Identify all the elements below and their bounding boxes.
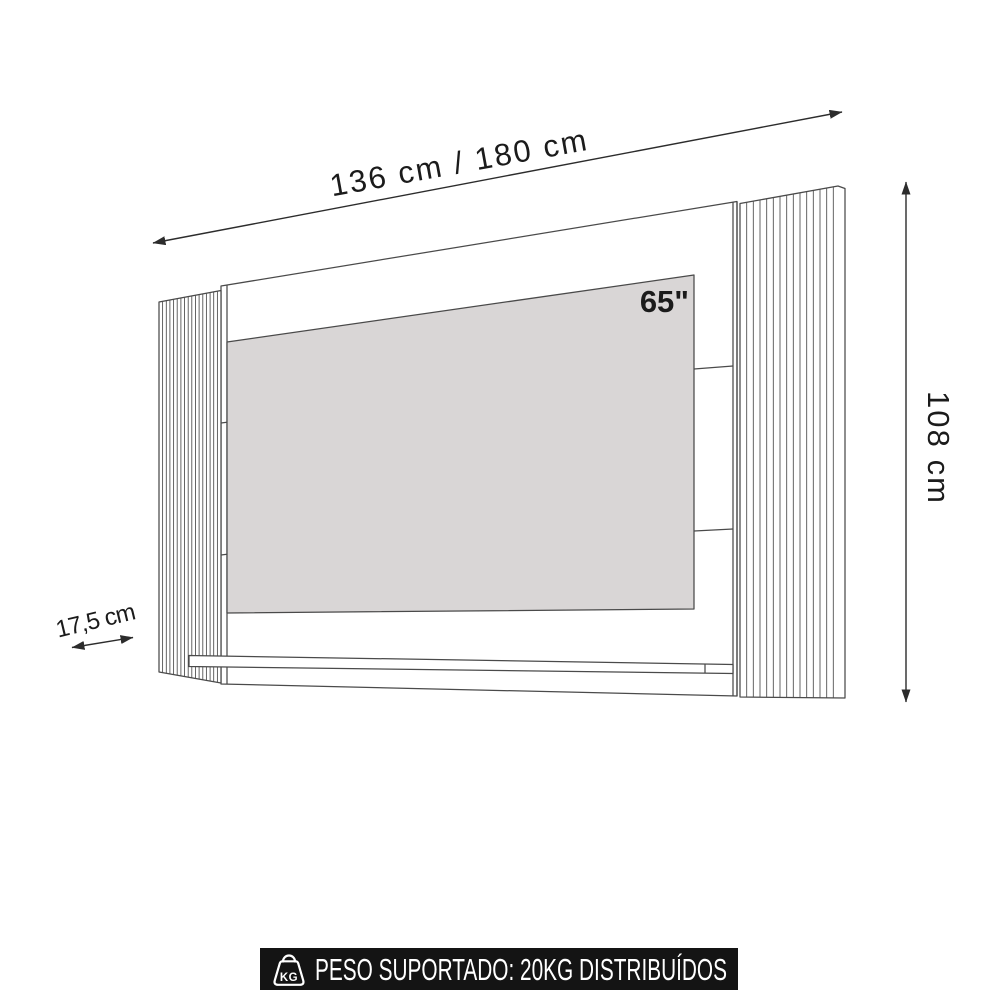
right-slat-panel [737, 186, 845, 698]
left-slat-panel-face [159, 291, 221, 684]
width-dimension-label: 136 cm / 180 cm [327, 122, 591, 203]
panel-drawing: 65" [159, 186, 845, 698]
depth-dimension-arrow [72, 638, 133, 648]
furniture-dimension-diagram: 65" 136 cm / 180 cm 108 cm 17,5 cm KG PE… [0, 0, 1000, 1000]
right-slat-panel-face [740, 186, 845, 698]
depth-dimension-label: 17,5 cm [53, 598, 139, 643]
left-slat-panel [159, 291, 221, 684]
diagram-canvas: 65" 136 cm / 180 cm 108 cm 17,5 cm KG PE… [0, 0, 1000, 1000]
height-dimension: 108 cm [906, 182, 956, 702]
height-dimension-label: 108 cm [921, 391, 956, 505]
kg-weight-icon-label: KG [280, 972, 298, 984]
depth-dimension: 17,5 cm [53, 598, 139, 647]
tv-size-label: 65" [640, 284, 689, 319]
weight-banner-label: PESO SUPORTADO: 20KG DISTRIBUÍDOS [315, 952, 727, 987]
board-seam [221, 422, 227, 423]
width-dimension: 136 cm / 180 cm [153, 112, 842, 243]
width-dimension-arrow [153, 112, 842, 243]
board-seam [221, 554, 227, 555]
weight-banner: KG PESO SUPORTADO: 20KG DISTRIBUÍDOS [260, 948, 738, 990]
